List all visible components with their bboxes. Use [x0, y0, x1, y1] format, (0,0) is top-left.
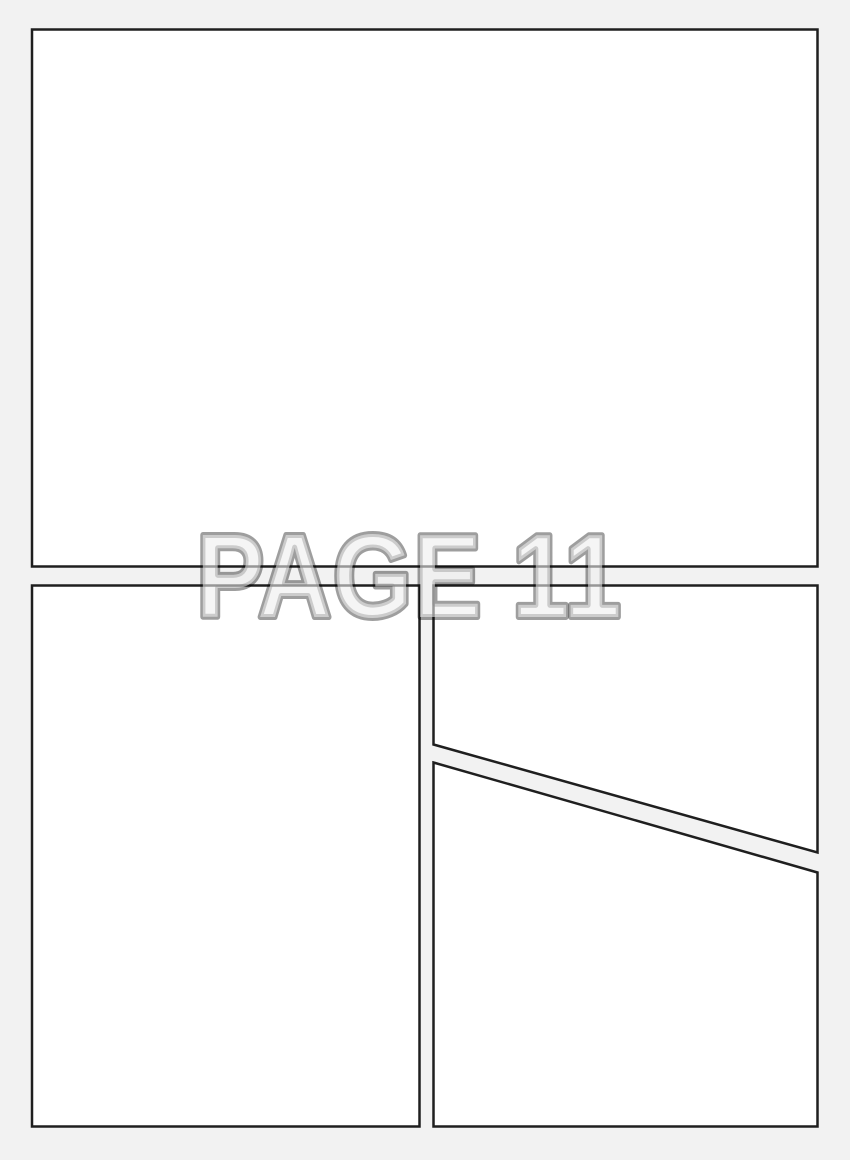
comic-page-template: PAGE 11 [0, 0, 850, 1160]
panel-top [32, 30, 818, 567]
panel-bottom-left [32, 586, 420, 1127]
page-canvas: PAGE 11 [0, 0, 850, 1160]
page-number-label: PAGE 11 [196, 510, 622, 643]
